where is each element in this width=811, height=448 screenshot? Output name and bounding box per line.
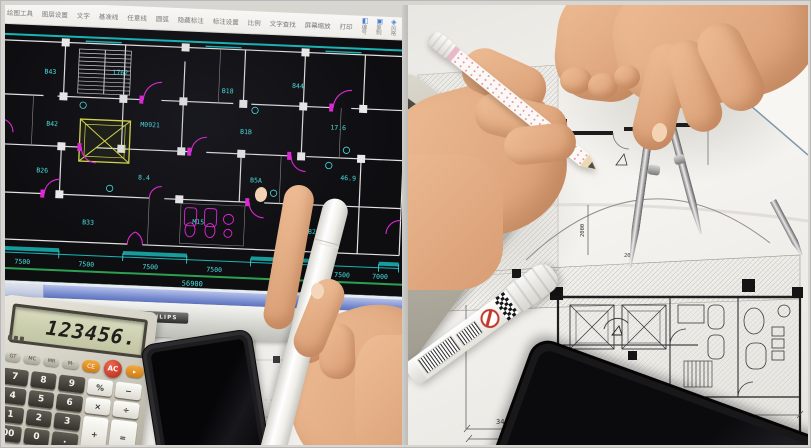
cad-room-label: 46.9: [340, 174, 356, 183]
pointing-hand-wrist: [355, 335, 402, 445]
cad-right-dimension: 7000: [372, 272, 388, 281]
calculator-key: 2: [25, 409, 52, 428]
tool-label: 编号: [361, 25, 368, 36]
calculator-key: 5: [27, 390, 54, 409]
compass-joint: [647, 164, 660, 176]
pencil-hand-wrist: [408, 155, 503, 290]
knuckle: [614, 65, 640, 89]
cad-bathroom-fixtures: [179, 203, 245, 246]
dim-2000: 2000: [580, 224, 586, 237]
calculator-key: 1: [5, 405, 24, 424]
photo-collage: 绘图工具图层设置文字基准线任意线圆弧隐藏标注标注设置比例文字查找屏幕缩放打印 ◧…: [0, 0, 811, 448]
cad-room-label: B33: [82, 218, 94, 226]
calculator-key: 3: [53, 412, 80, 431]
calculator-display-value: 123456.: [45, 315, 139, 350]
cad-room-label: M15: [192, 218, 204, 226]
menu-item: 图层设置: [42, 8, 68, 19]
calculator-key: −: [115, 381, 142, 400]
calculator-key: .: [51, 431, 78, 445]
collage-inner: 绘图工具图层设置文字基准线任意线圆弧隐藏标注标注设置比例文字查找屏幕缩放打印 ◧…: [5, 5, 808, 445]
cad-room-label: B42: [46, 120, 58, 128]
menu-item: 屏幕缩放: [304, 19, 330, 30]
cad-dimension-label: 7500: [14, 257, 30, 266]
menu-item: 绘图工具: [7, 7, 33, 18]
cad-dimension-label: 7500: [142, 263, 158, 272]
calculator-key: +: [80, 416, 110, 445]
toolbar-tool: ◈风格: [390, 19, 396, 38]
smartphone-screen: [150, 338, 261, 445]
calculator-key: 8: [30, 371, 57, 390]
cad-room-label: B5A: [250, 176, 262, 184]
calculator-key: 4: [5, 386, 26, 405]
right-photo-blueprints: 9000 30700 3400 200 2000 789456123000.: [408, 5, 808, 445]
menu-item: 基准线: [99, 11, 119, 22]
memory-key: M-: [62, 358, 79, 369]
toolbar-tool: ◧编号: [361, 17, 368, 36]
menu-item: 隐藏标注: [178, 14, 204, 25]
ce-key: CE: [81, 359, 101, 373]
tool-icon: ◧: [362, 17, 369, 24]
calculator-key: 6: [56, 393, 83, 412]
cad-elevator: [79, 119, 131, 163]
calculator-key: %: [86, 378, 113, 397]
calculator: 123456. GT MC MR M- CE AC ▸ 789%−456×÷12…: [5, 294, 158, 445]
knuckle: [560, 67, 592, 94]
calculator-key: 7: [5, 368, 29, 387]
left-photo-monitor: 绘图工具图层设置文字基准线任意线圆弧隐藏标注标注设置比例文字查找屏幕缩放打印 ◧…: [5, 5, 402, 445]
tool-label: 风格: [390, 27, 396, 38]
cad-dimension-label: 7500: [334, 271, 350, 280]
smartphone: [141, 329, 271, 445]
cad-screen: B431762B42M0921B18844B1B17.6B268.4B5A46.…: [5, 23, 402, 297]
cad-room-label: B26: [36, 166, 48, 174]
cad-room-label: B43: [44, 68, 56, 76]
calculator-key: 9: [58, 374, 85, 393]
cad-room-label: B1B: [240, 128, 252, 136]
memory-key: MR: [43, 356, 60, 367]
calculator-key: =: [108, 419, 138, 445]
thumbnail: [311, 283, 324, 299]
cad-total-dimension: 56900: [182, 279, 203, 288]
calculator-key: ×: [84, 397, 111, 416]
cad-dimension-label: 7500: [78, 260, 94, 269]
memory-key: MC: [23, 354, 40, 365]
tool-icon: ◈: [391, 19, 397, 26]
ac-key: AC: [103, 359, 122, 379]
barcode-label: [455, 320, 483, 346]
cad-room-label: 8.4: [138, 174, 150, 182]
calculator-key: ÷: [113, 400, 140, 419]
menu-item: 文字: [77, 10, 90, 21]
menu-item: 文字查找: [270, 18, 296, 29]
arrow-key: ▸: [125, 364, 145, 378]
tool-icon: ▣: [376, 18, 383, 25]
calculator-key: 00: [5, 424, 22, 443]
cad-room-label: B18: [222, 87, 234, 95]
cad-room-label: M0921: [140, 121, 160, 130]
menu-item: 打印: [339, 21, 352, 32]
memory-key: GT: [5, 351, 22, 362]
menu-item: 任意线: [127, 12, 147, 23]
cad-room-label: 1762: [112, 68, 128, 77]
cad-room-label: 844: [292, 82, 304, 90]
cad-toolbar-icons: ◧编号▣复制◈风格◉关于▤资料: [361, 17, 402, 39]
cad-room-label: 17.6: [330, 124, 346, 133]
menu-item: 标注设置: [213, 16, 239, 27]
menu-item: 圆弧: [156, 13, 169, 24]
cad-drawing: B431762B42M0921B18844B1B17.6B268.4B5A46.…: [5, 23, 402, 297]
cad-dimension-label: 7500: [206, 265, 222, 274]
tool-label: 复制: [376, 26, 383, 37]
calculator-key: 0: [23, 428, 50, 445]
toolbar-tool: ▣复制: [376, 18, 383, 37]
menu-item: 比例: [248, 17, 261, 28]
